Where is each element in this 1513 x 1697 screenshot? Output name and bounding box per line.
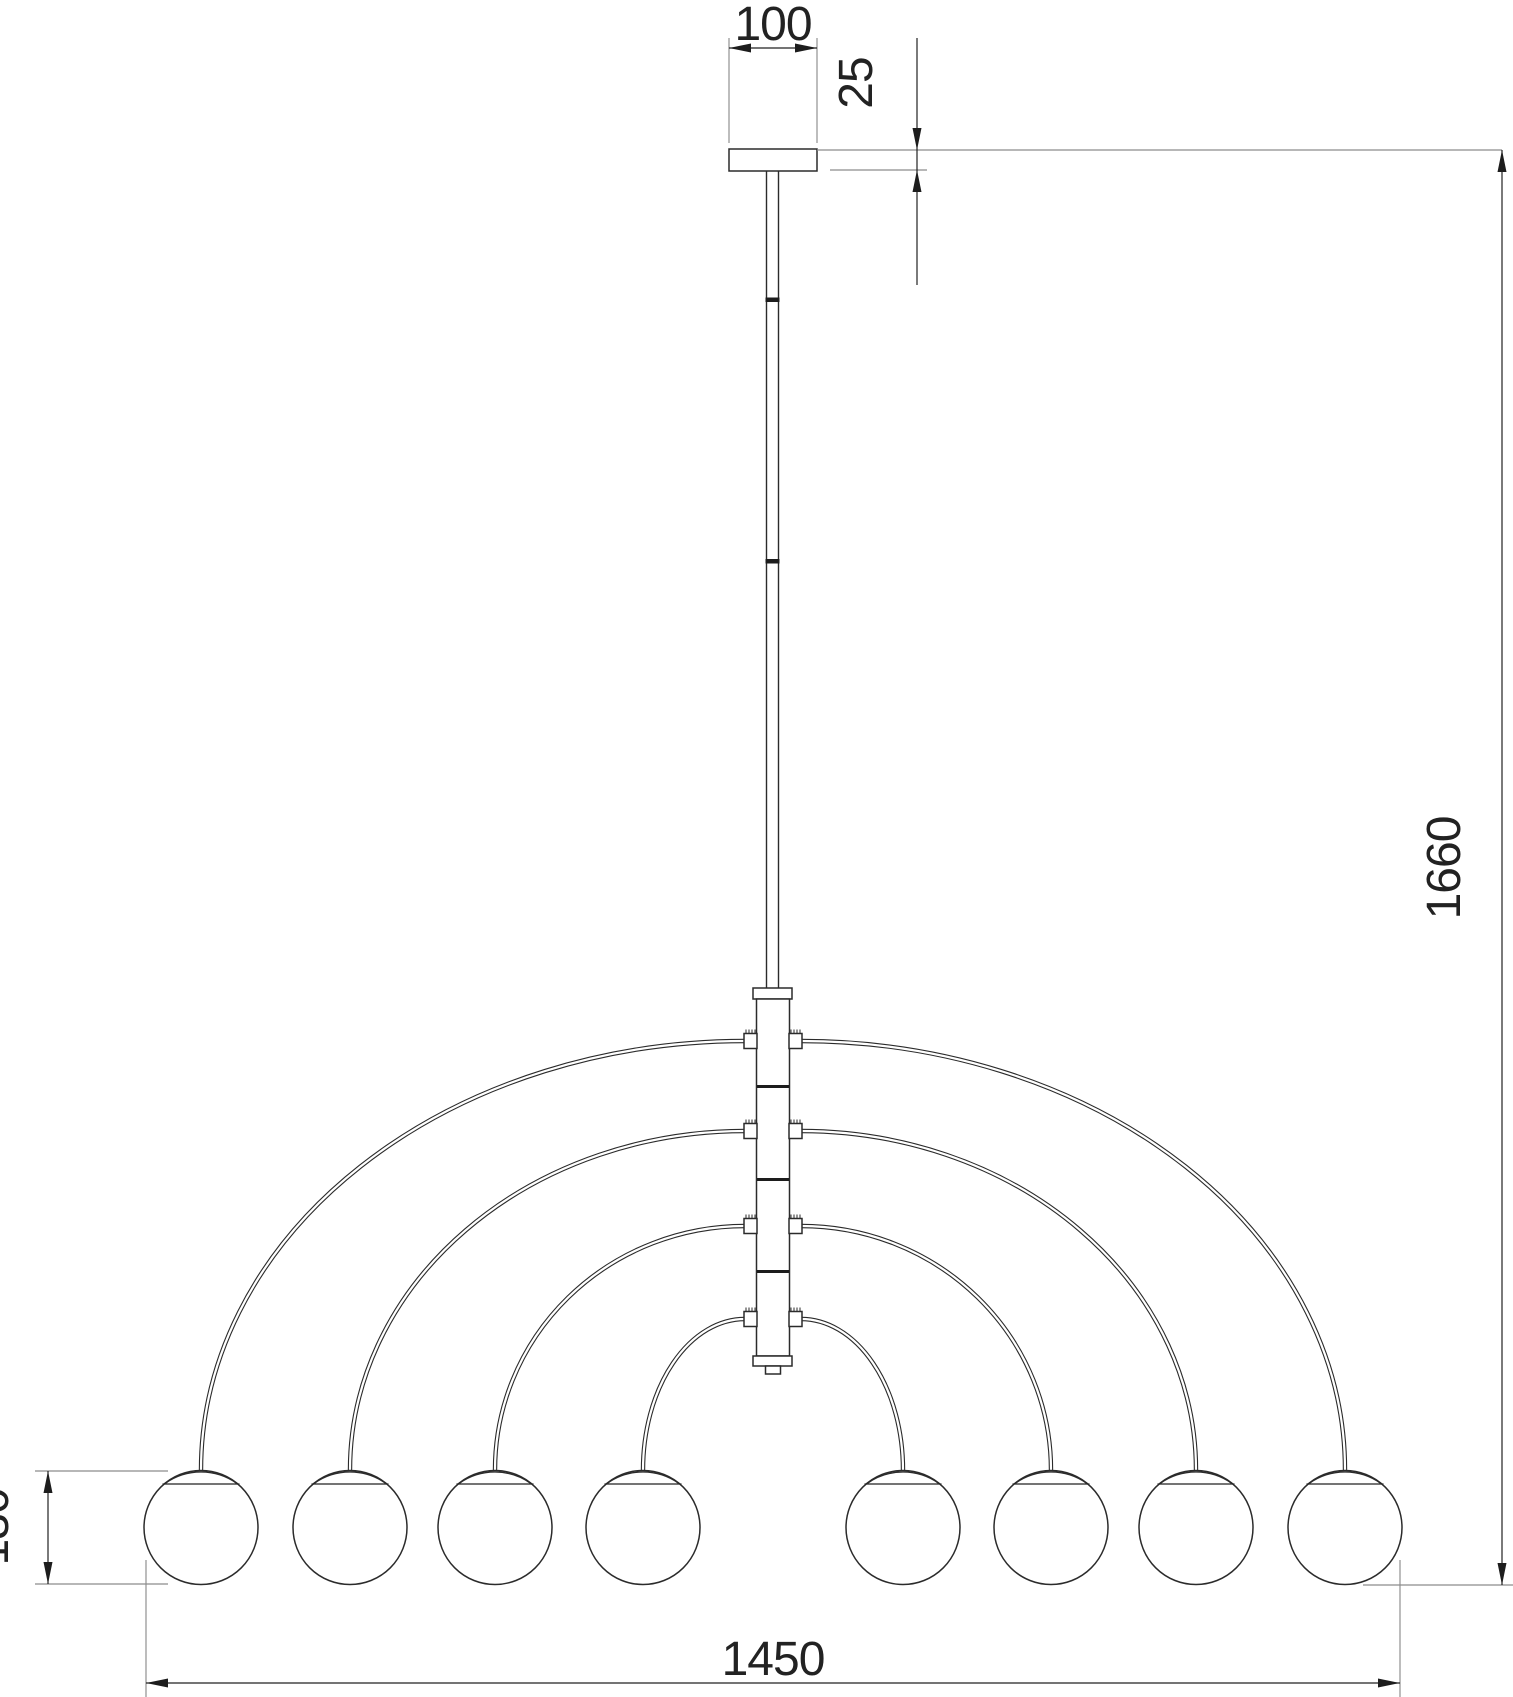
connector-right-3	[789, 1219, 802, 1234]
connector-left-2	[744, 1124, 757, 1139]
arm-arc-right-2	[801, 1131, 1196, 1470]
arm-arc-left-2-core	[350, 1131, 745, 1470]
arm-arc-right-2-core	[801, 1131, 1196, 1470]
technical-drawing-page: 100 25 1660 130 1450	[0, 0, 1513, 1697]
connector-right-2	[789, 1124, 802, 1139]
arm-arc-left-3-core	[495, 1226, 745, 1470]
arm-arc-right-4	[801, 1319, 903, 1470]
hub-top-cap	[753, 988, 792, 999]
dim-25-arrow-down	[913, 128, 922, 150]
dim-130-label: 130	[0, 1488, 19, 1565]
dim-25-label: 25	[830, 57, 883, 108]
glass-globes	[144, 1471, 1402, 1585]
glass-globe-5	[846, 1471, 960, 1585]
glass-globe-8	[1288, 1471, 1402, 1585]
arm-arc-left-2	[350, 1131, 745, 1470]
glass-globe-4	[586, 1471, 700, 1585]
rod-joint-lower	[766, 559, 780, 564]
hub-bottom-cap	[753, 1356, 792, 1366]
connector-right-4	[789, 1312, 802, 1327]
globe-6-sphere	[994, 1471, 1108, 1585]
dim-1450-arrow-left	[146, 1679, 168, 1688]
dim-25-arrow-up	[913, 170, 922, 192]
dim-1450-arrow-right	[1378, 1679, 1400, 1688]
dim-1450-label: 1450	[722, 1633, 825, 1686]
connector-right-1	[789, 1034, 802, 1049]
arm-arc-left-1	[201, 1041, 745, 1470]
globe-2-sphere	[293, 1471, 407, 1585]
connector-left-4	[744, 1312, 757, 1327]
dimension-globe-diameter: 130	[0, 1471, 168, 1584]
arm-arc-left-4	[643, 1319, 745, 1470]
arm-arc-left-3	[495, 1226, 745, 1470]
globe-4-sphere	[586, 1471, 700, 1585]
globe-1-sphere	[144, 1471, 258, 1585]
dim-130-arrow-top	[44, 1471, 53, 1493]
connector-left-3	[744, 1219, 757, 1234]
globe-8-sphere	[1288, 1471, 1402, 1585]
dimension-canopy-thickness: 25	[817, 38, 1502, 285]
glass-globe-2	[293, 1471, 407, 1585]
suspension-rod	[766, 171, 780, 990]
arm-arc-right-3-core	[801, 1226, 1051, 1470]
rod-joint-upper	[766, 298, 780, 303]
dim-1660-arrow-top	[1498, 150, 1507, 172]
arm-arc-right-1	[801, 1041, 1345, 1470]
globe-7-sphere	[1139, 1471, 1253, 1585]
ceiling-canopy	[729, 149, 817, 171]
glass-globe-1	[144, 1471, 258, 1585]
chandelier-technical-drawing: 100 25 1660 130 1450	[0, 0, 1513, 1697]
glass-globe-7	[1139, 1471, 1253, 1585]
dimension-canopy-width: 100	[729, 0, 817, 143]
central-hub	[744, 988, 802, 1374]
dim-1660-label: 1660	[1418, 817, 1471, 920]
hub-bottom-nub	[766, 1366, 781, 1374]
dim-100-label: 100	[734, 0, 811, 51]
dimension-overall-height: 1660	[1363, 150, 1513, 1585]
connector-left-1	[744, 1034, 757, 1049]
arm-arc-right-3	[801, 1226, 1051, 1470]
hub-body	[757, 999, 790, 1356]
dim-130-arrow-bottom	[44, 1562, 53, 1584]
globe-3-sphere	[438, 1471, 552, 1585]
glass-globe-6	[994, 1471, 1108, 1585]
arm-arc-left-1-core	[201, 1041, 745, 1470]
arm-arc-right-1-core	[801, 1041, 1345, 1470]
glass-globe-3	[438, 1471, 552, 1585]
globe-5-sphere	[846, 1471, 960, 1585]
dim-1660-arrow-bottom	[1498, 1563, 1507, 1585]
